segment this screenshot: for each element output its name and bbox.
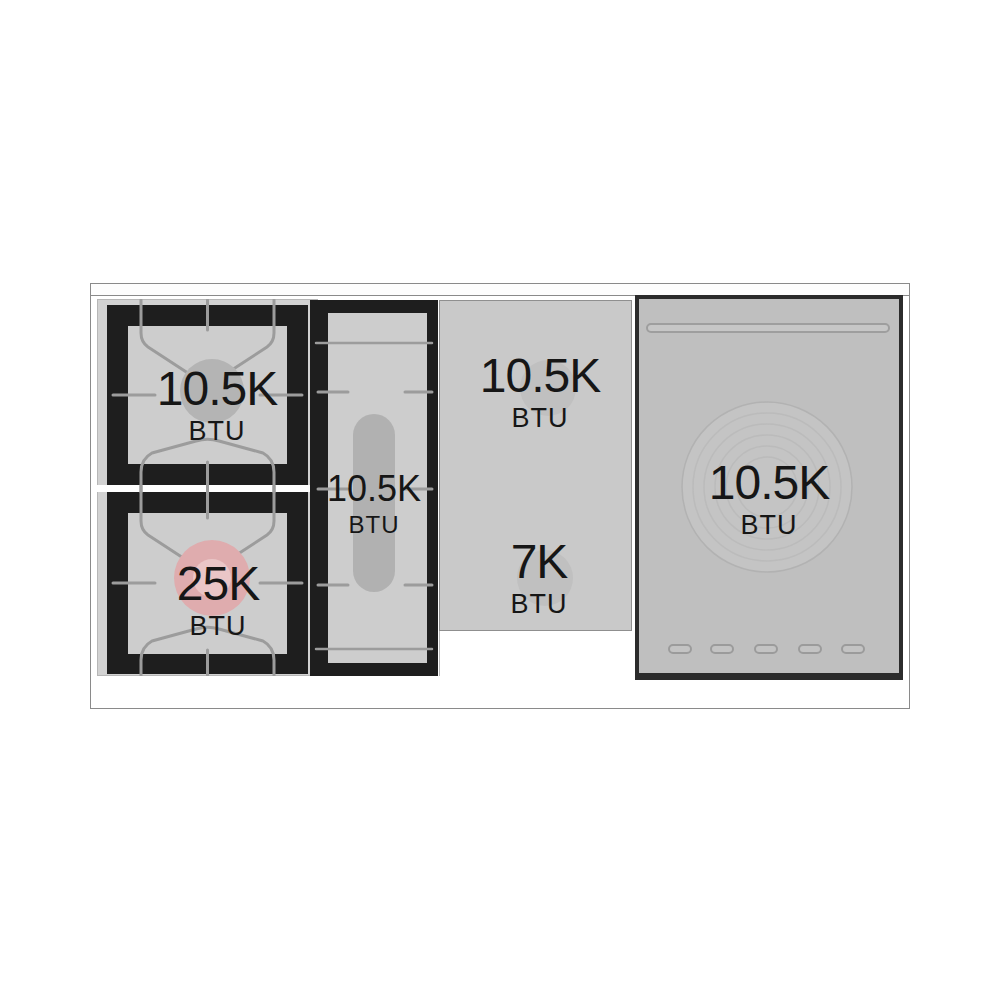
btu-unit: BTU bbox=[327, 513, 421, 537]
btu-value: 7K bbox=[511, 538, 568, 586]
cooktop-diagram: 10.5K BTU 25K BTU 10.5K BTU 10.5K BTU 7K… bbox=[0, 0, 1000, 1000]
btu-label-right-zone: 10.5K BTU bbox=[709, 459, 829, 539]
control-pill-5 bbox=[841, 644, 865, 654]
btu-unit: BTU bbox=[480, 405, 600, 432]
control-pill-4 bbox=[798, 644, 822, 654]
btu-label-french-top-rear: 10.5K BTU bbox=[480, 352, 600, 432]
control-pill-2 bbox=[710, 644, 734, 654]
btu-label-french-top-front: 7K BTU bbox=[511, 538, 568, 618]
grate-divider bbox=[95, 485, 318, 492]
btu-label-left-rear: 10.5K BTU bbox=[157, 365, 277, 445]
btu-label-left-front: 25K BTU bbox=[177, 560, 259, 640]
control-pill-1 bbox=[668, 644, 692, 654]
right-zone-rail bbox=[646, 323, 890, 333]
french-top-front-strip bbox=[439, 631, 632, 676]
btu-unit: BTU bbox=[709, 512, 829, 539]
btu-unit: BTU bbox=[157, 418, 277, 445]
btu-value: 10.5K bbox=[157, 365, 277, 413]
btu-value: 10.5K bbox=[327, 471, 421, 507]
btu-unit: BTU bbox=[177, 613, 259, 640]
control-pill-3 bbox=[754, 644, 778, 654]
btu-unit: BTU bbox=[511, 591, 568, 618]
btu-label-griddle: 10.5K BTU bbox=[327, 471, 421, 537]
btu-value: 10.5K bbox=[480, 352, 600, 400]
btu-value: 10.5K bbox=[709, 459, 829, 507]
btu-value: 25K bbox=[177, 560, 259, 608]
